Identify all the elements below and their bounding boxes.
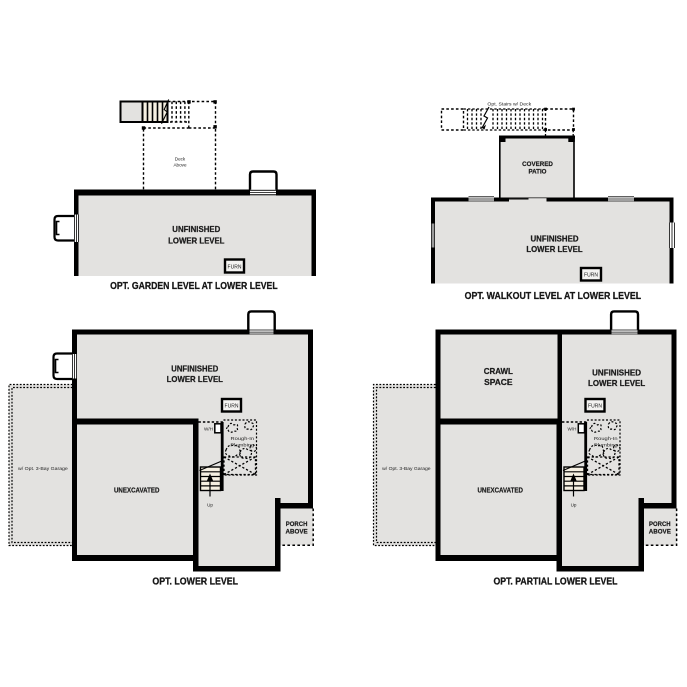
svg-text:Opt. Stairs w/ Deck: Opt. Stairs w/ Deck (487, 102, 531, 107)
svg-text:LOWER LEVEL: LOWER LEVEL (167, 374, 223, 384)
svg-text:CRAWL: CRAWL (484, 366, 513, 376)
svg-text:UNFINISHED: UNFINISHED (172, 224, 220, 234)
svg-text:w/ Opt. 3-Bay Garage: w/ Opt. 3-Bay Garage (382, 466, 431, 471)
svg-text:UNEXCAVATED: UNEXCAVATED (478, 488, 523, 495)
svg-text:FURN: FURN (584, 273, 598, 279)
svg-text:UNEXCAVATED: UNEXCAVATED (114, 488, 159, 495)
svg-text:Up: Up (571, 503, 577, 508)
svg-text:PORCH: PORCH (649, 521, 671, 528)
svg-text:W/H: W/H (204, 427, 213, 432)
svg-text:FURN: FURN (588, 404, 602, 410)
svg-text:Rough-In: Rough-In (594, 436, 618, 441)
svg-text:Above: Above (173, 163, 186, 168)
svg-text:UNFINISHED: UNFINISHED (171, 364, 218, 374)
svg-text:UNFINISHED: UNFINISHED (531, 234, 579, 244)
svg-text:Up: Up (207, 503, 213, 508)
svg-text:SPACE: SPACE (484, 377, 513, 387)
svg-text:w/ Opt. 3-Bay Garage: w/ Opt. 3-Bay Garage (18, 466, 68, 471)
svg-text:Plumbing: Plumbing (594, 443, 618, 448)
svg-text:FURN: FURN (228, 264, 242, 270)
svg-text:Rough-In: Rough-In (231, 436, 255, 441)
svg-text:LOWER LEVEL: LOWER LEVEL (168, 235, 224, 245)
svg-text:OPT. PARTIAL LOWER LEVEL: OPT. PARTIAL LOWER LEVEL (494, 575, 618, 587)
svg-text:ABOVE: ABOVE (286, 529, 309, 536)
svg-text:OPT. GARDEN LEVEL AT LOWER LEV: OPT. GARDEN LEVEL AT LOWER LEVEL (110, 280, 278, 292)
svg-text:Deck: Deck (175, 157, 186, 162)
svg-text:W/H: W/H (568, 427, 577, 432)
svg-text:OPT. LOWER LEVEL: OPT. LOWER LEVEL (152, 575, 238, 587)
svg-text:LOWER LEVEL: LOWER LEVEL (588, 378, 645, 388)
svg-text:ABOVE: ABOVE (649, 529, 672, 536)
svg-text:OPT. WALKOUT LEVEL AT LOWER LE: OPT. WALKOUT LEVEL AT LOWER LEVEL (465, 290, 642, 302)
svg-text:FURN: FURN (225, 404, 239, 410)
svg-text:Plumbing: Plumbing (230, 443, 254, 448)
svg-text:UNFINISHED: UNFINISHED (592, 368, 641, 378)
svg-text:COVERED: COVERED (522, 161, 553, 168)
svg-text:LOWER LEVEL: LOWER LEVEL (526, 244, 582, 254)
svg-text:PORCH: PORCH (286, 521, 308, 528)
svg-text:PATIO: PATIO (529, 169, 547, 176)
